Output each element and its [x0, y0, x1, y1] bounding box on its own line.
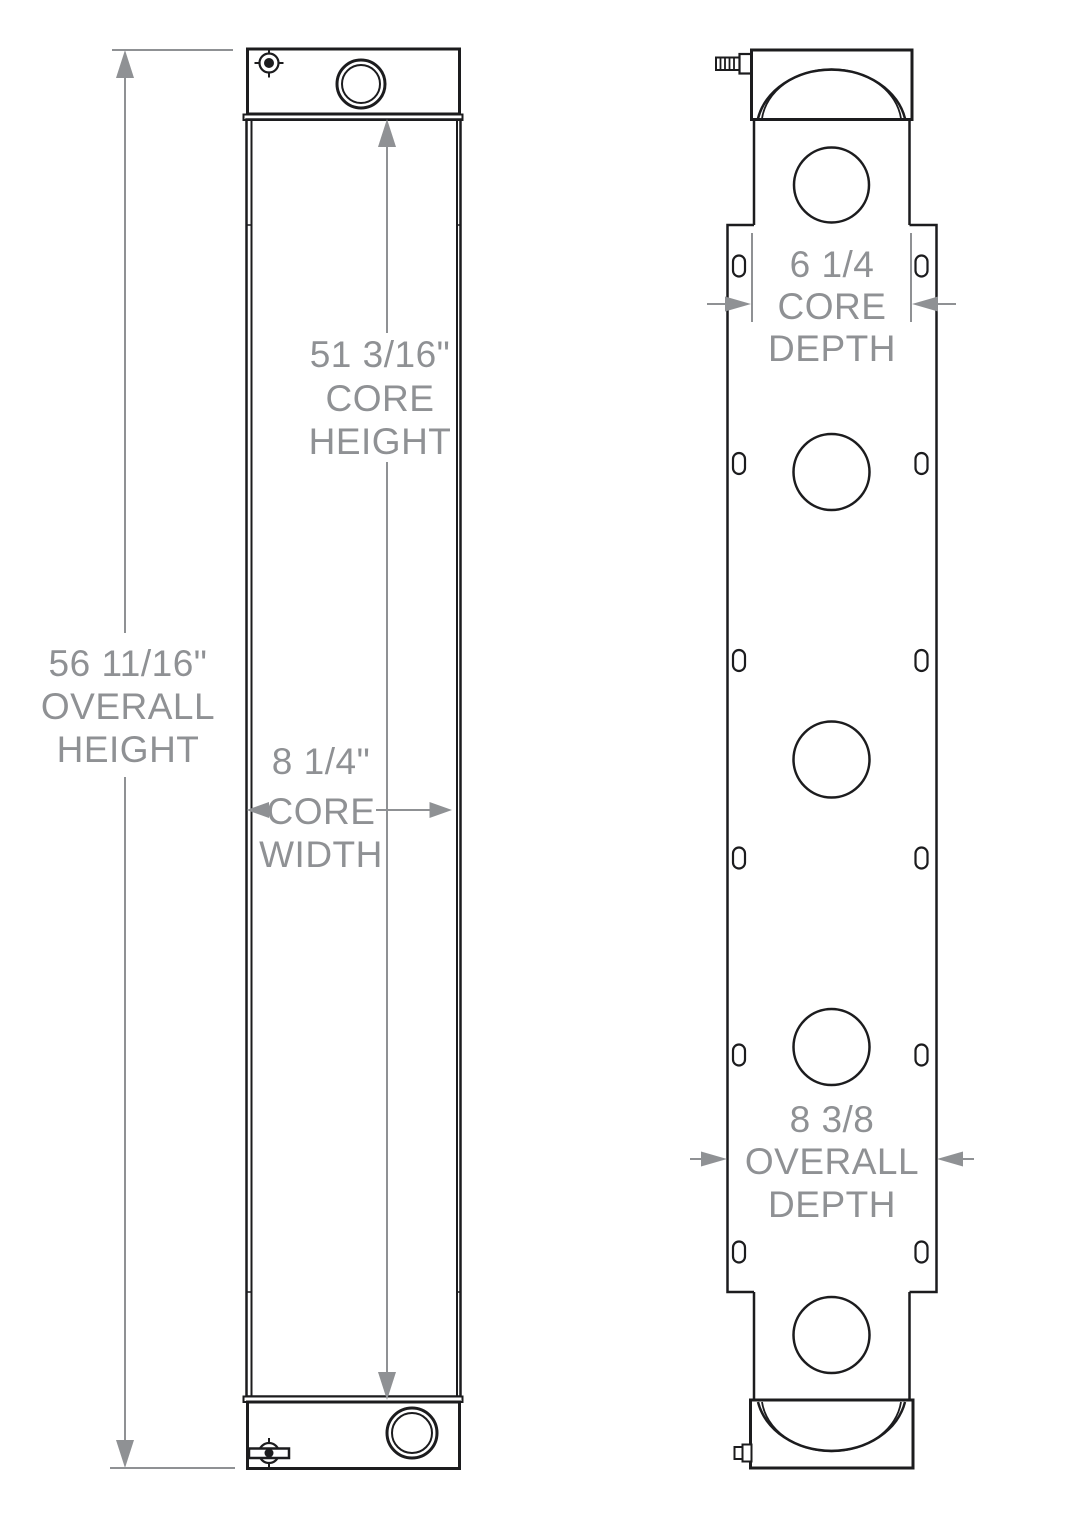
flange-outline-right — [910, 225, 937, 1292]
mounting-slot — [733, 256, 745, 277]
arrowhead-right — [430, 802, 453, 818]
mounting-slot — [733, 650, 745, 671]
barb-hex-nut — [740, 54, 752, 74]
arrowhead-down — [116, 1440, 134, 1468]
core-height-value: 51 3/16" — [310, 334, 451, 375]
core-depth-value: 6 1/4 — [790, 244, 875, 285]
core-height-label-1: CORE — [326, 378, 435, 419]
mounting-slot — [733, 848, 745, 869]
flange-outline-left — [728, 225, 755, 1292]
arrowhead-up — [116, 50, 134, 78]
tube-hole — [794, 148, 869, 223]
core-height-label-2: HEIGHT — [309, 421, 452, 462]
mounting-slot — [916, 1045, 928, 1066]
dim-overall-depth: 8 3/8 OVERALL DEPTH — [690, 1099, 974, 1225]
tube-hole — [794, 722, 870, 798]
mounting-slot — [916, 256, 928, 277]
overflow-barb-icon — [716, 54, 752, 74]
mounting-slot — [916, 848, 928, 869]
overall-height-label-1: OVERALL — [41, 686, 215, 727]
dim-core-depth: 6 1/4 CORE DEPTH — [707, 233, 956, 369]
outlet-neck-icon — [387, 1408, 437, 1458]
mounting-slot — [916, 1242, 928, 1263]
mounting-slot — [916, 650, 928, 671]
tube-hole — [794, 434, 870, 510]
filler-neck-icon — [337, 60, 385, 108]
core-depth-label-1: CORE — [778, 286, 887, 327]
core-width-label-2: WIDTH — [259, 834, 383, 875]
core-depth-label-2: DEPTH — [768, 328, 896, 369]
mounting-slot — [916, 453, 928, 474]
core-width-value: 8 1/4" — [272, 741, 370, 782]
arrowhead-left — [912, 297, 938, 312]
mounting-slot — [733, 453, 745, 474]
vent-cap-center — [264, 58, 274, 68]
arrowhead-left — [937, 1152, 963, 1167]
overall-depth-label-1: OVERALL — [745, 1141, 919, 1182]
side-bottom-tank-outline — [751, 1400, 914, 1468]
tube-hole — [794, 1297, 870, 1373]
overall-depth-value: 8 3/8 — [790, 1099, 875, 1140]
tube-hole — [794, 1009, 870, 1085]
dim-core-width: 8 1/4" CORE WIDTH — [247, 741, 453, 875]
drain-plug-hex — [743, 1445, 752, 1462]
overall-height-value: 56 11/16" — [49, 643, 208, 684]
core-width-label-1: CORE — [267, 791, 376, 832]
mounting-slot — [733, 1242, 745, 1263]
side-top-tank-outline — [752, 50, 913, 120]
arrowhead-up — [378, 119, 396, 147]
drain-cock-center — [265, 1449, 274, 1458]
overall-depth-label-2: DEPTH — [768, 1184, 896, 1225]
filler-neck-outer — [337, 60, 385, 108]
arrowhead-right — [725, 297, 751, 312]
arrowhead-right — [701, 1152, 727, 1167]
drain-plug-tip — [735, 1447, 743, 1459]
overall-height-label-2: HEIGHT — [57, 729, 200, 770]
technical-drawing: 56 11/16" OVERALL HEIGHT 51 3/16" CORE H… — [0, 0, 1067, 1520]
dim-overall-height: 56 11/16" OVERALL HEIGHT — [41, 50, 235, 1468]
mounting-slot — [733, 1045, 745, 1066]
outlet-outer — [387, 1408, 437, 1458]
drawing-canvas: 56 11/16" OVERALL HEIGHT 51 3/16" CORE H… — [0, 0, 1067, 1520]
drain-plug-icon — [735, 1445, 752, 1462]
